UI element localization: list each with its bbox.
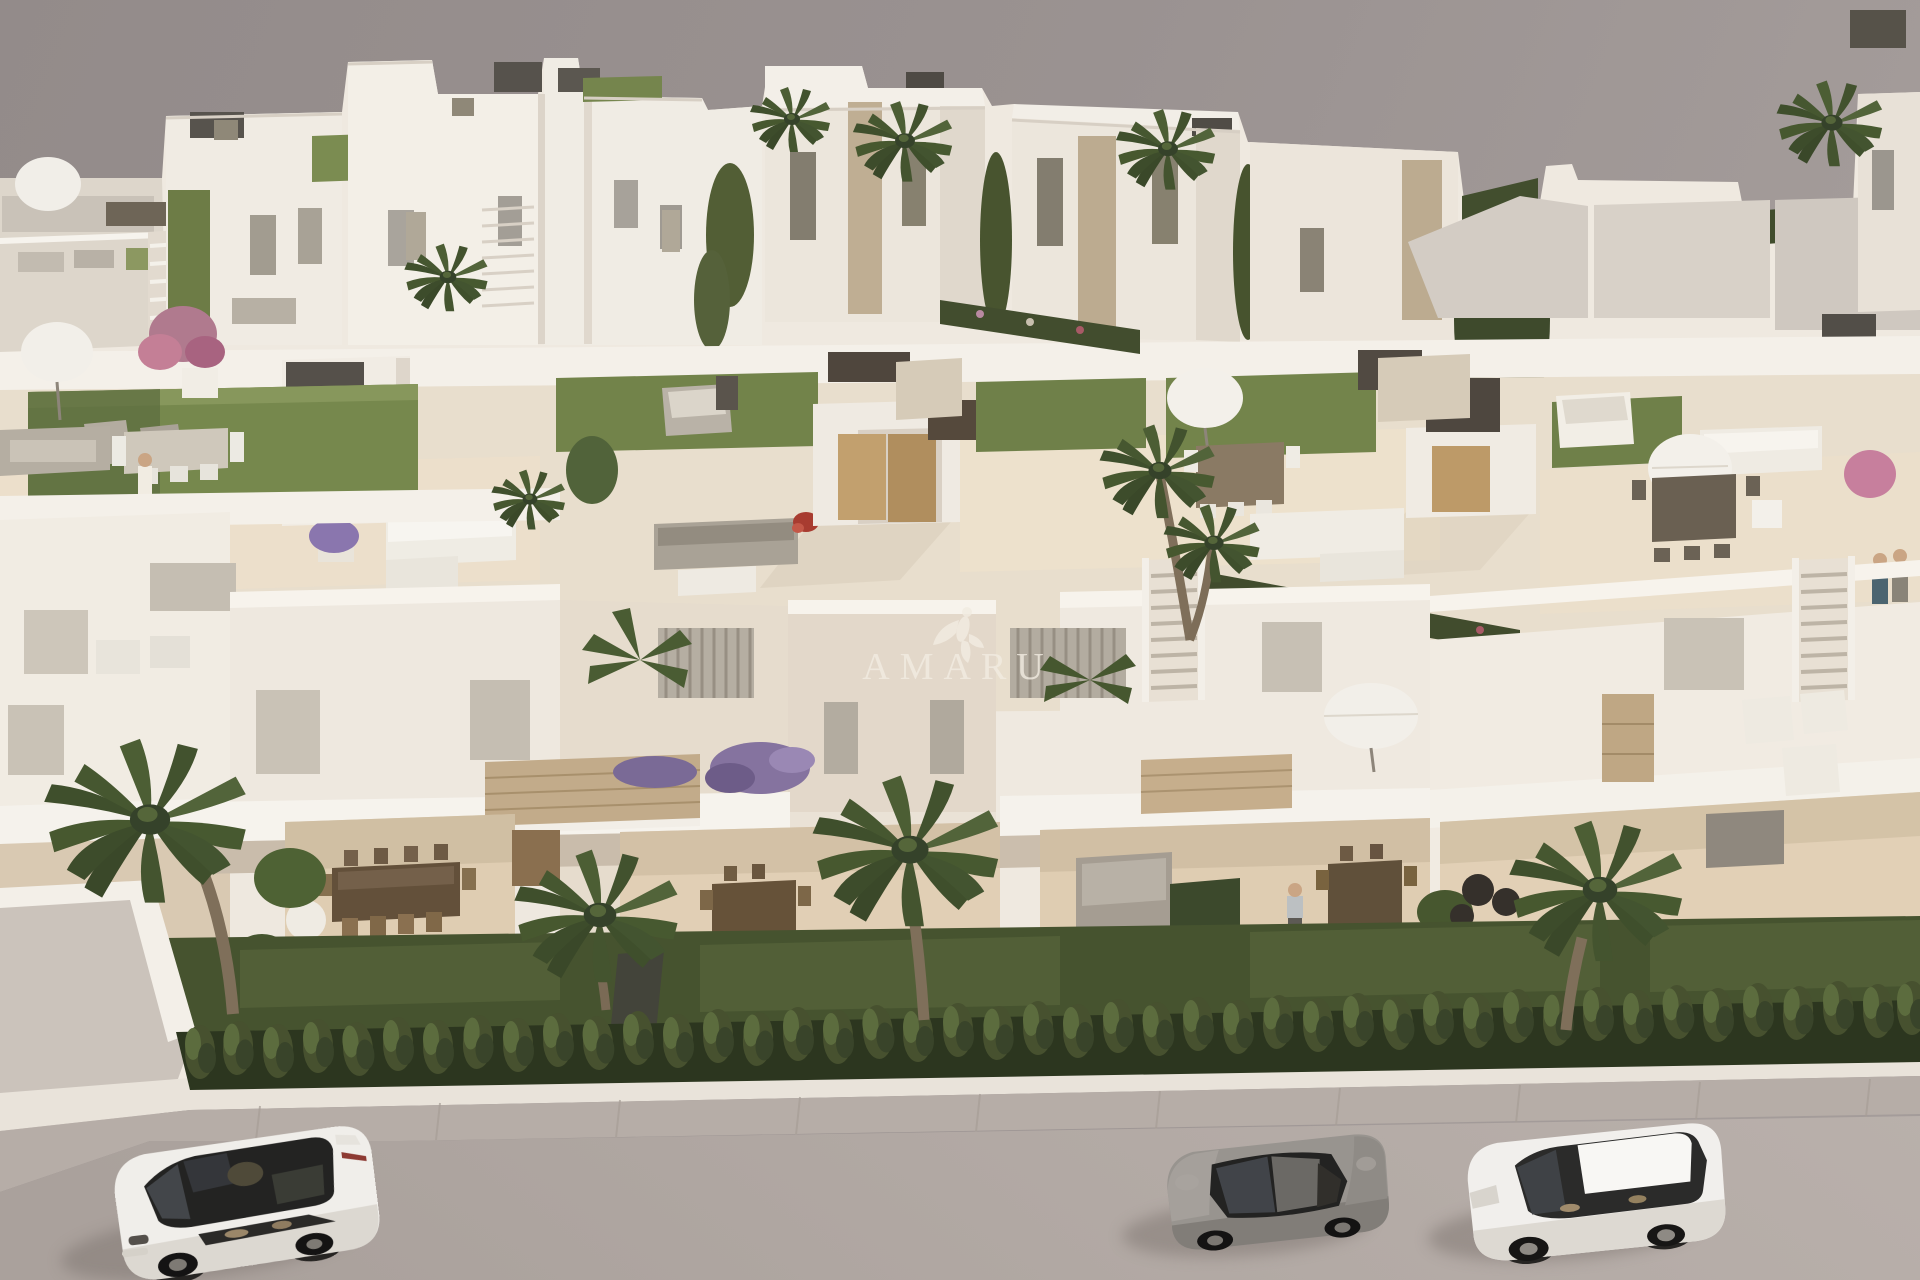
svg-text:AMARU: AMARU xyxy=(862,646,1053,688)
